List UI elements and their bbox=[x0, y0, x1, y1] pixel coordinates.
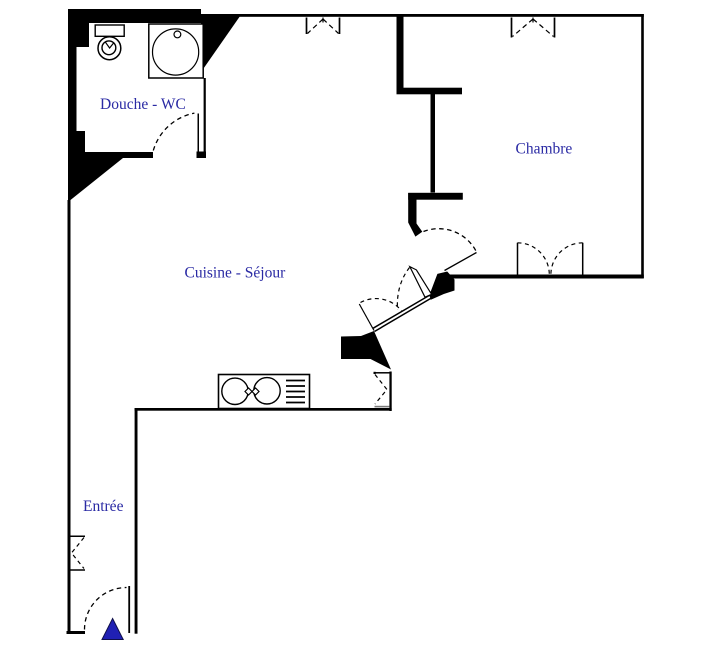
svg-text:Entrée: Entrée bbox=[83, 498, 124, 515]
svg-text:Cuisine - Séjour: Cuisine - Séjour bbox=[185, 265, 287, 282]
svg-text:Douche - WC: Douche - WC bbox=[100, 96, 186, 113]
svg-text:Chambre: Chambre bbox=[516, 141, 573, 158]
